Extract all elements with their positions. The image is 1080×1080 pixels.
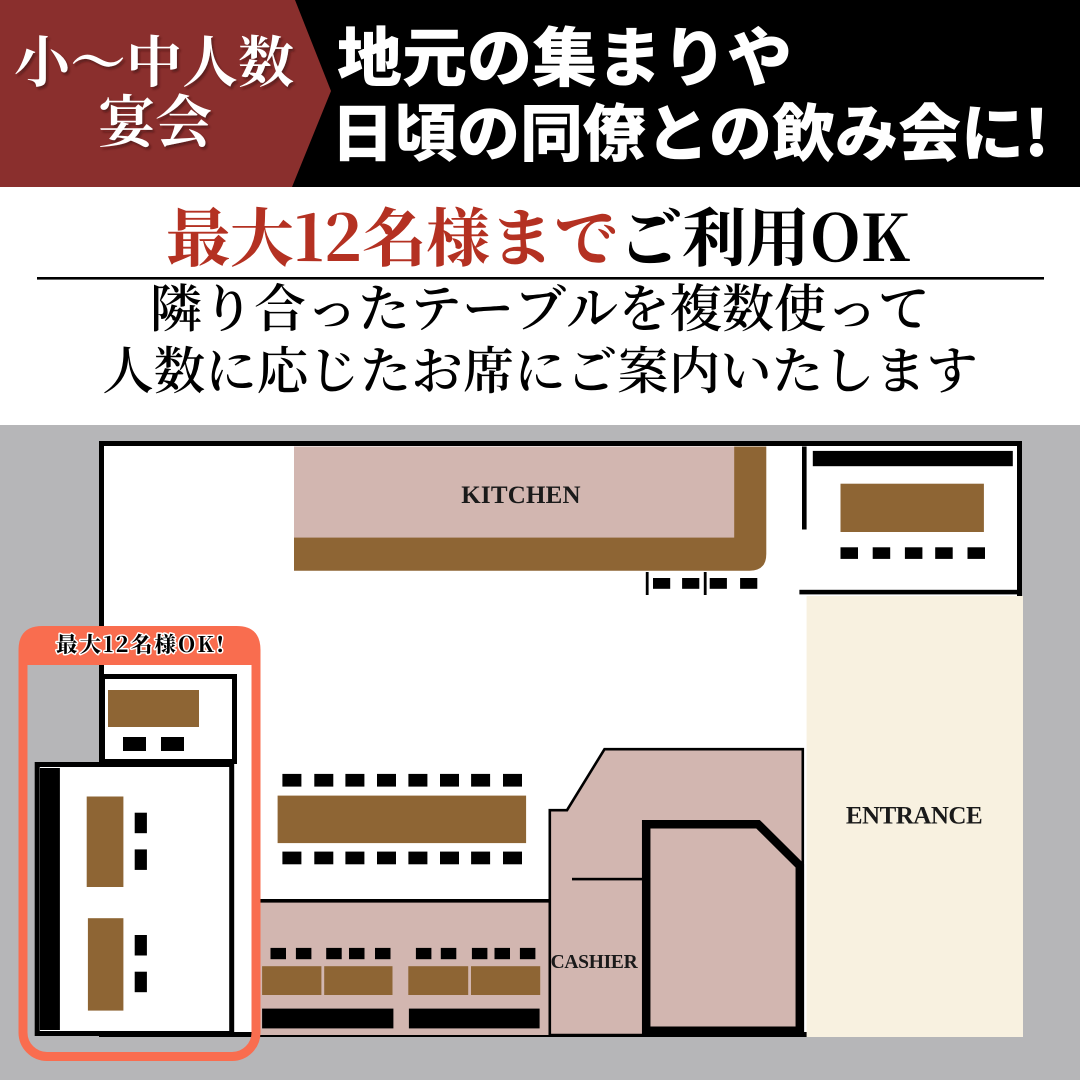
svg-text:KITCHEN: KITCHEN	[461, 482, 580, 509]
svg-text:ENTRANCE: ENTRANCE	[846, 803, 982, 830]
svg-text:CASHIER: CASHIER	[551, 952, 639, 973]
